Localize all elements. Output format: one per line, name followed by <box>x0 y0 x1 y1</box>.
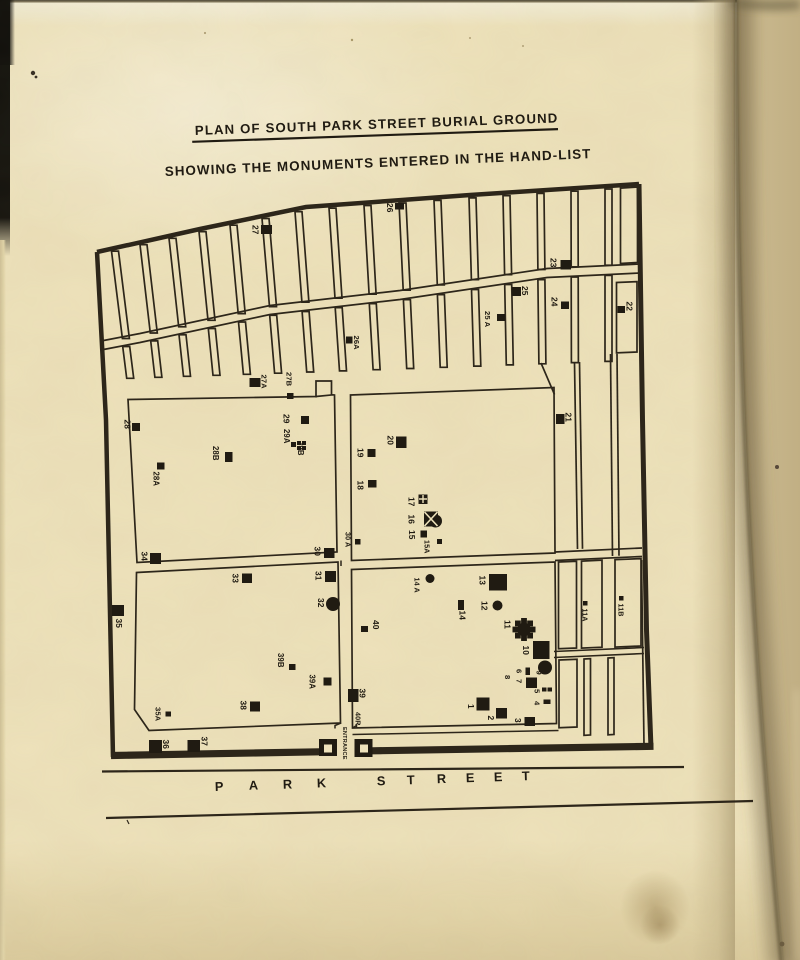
svg-text:24: 24 <box>550 297 560 307</box>
svg-text:39: 39 <box>358 689 368 699</box>
svg-text:27A: 27A <box>260 375 269 390</box>
svg-text:37: 37 <box>200 737 210 747</box>
svg-text:30 A: 30 A <box>344 532 353 547</box>
svg-text:35A: 35A <box>154 707 163 722</box>
svg-text:8: 8 <box>503 675 512 679</box>
svg-text:R: R <box>283 776 293 791</box>
svg-text:6: 6 <box>515 669 524 673</box>
svg-text:33: 33 <box>231 574 241 584</box>
svg-text:19: 19 <box>356 448 366 458</box>
svg-text:K: K <box>317 775 327 790</box>
svg-text:T: T <box>407 772 415 787</box>
svg-text:30: 30 <box>313 547 323 557</box>
svg-text:R: R <box>437 771 447 786</box>
svg-text:29B: 29B <box>296 441 305 456</box>
svg-text:29A: 29A <box>282 429 291 444</box>
svg-text:38: 38 <box>239 701 249 711</box>
svg-text:20: 20 <box>386 436 396 446</box>
svg-text:1: 1 <box>466 704 476 709</box>
svg-text:40R: 40R <box>354 712 363 726</box>
svg-text:14: 14 <box>458 611 468 621</box>
svg-text:39A: 39A <box>308 675 317 690</box>
svg-text:29: 29 <box>282 414 292 424</box>
svg-text:26A: 26A <box>352 336 361 351</box>
svg-text:T: T <box>522 768 530 783</box>
svg-text:14 A: 14 A <box>413 578 422 593</box>
svg-text:11B: 11B <box>617 604 626 617</box>
svg-text:32: 32 <box>316 598 326 608</box>
svg-text:16: 16 <box>407 515 417 525</box>
svg-text:S: S <box>377 773 386 788</box>
svg-text:7: 7 <box>515 679 524 683</box>
svg-text:11A: 11A <box>581 609 590 622</box>
svg-text:40: 40 <box>371 620 381 630</box>
svg-text:E: E <box>494 769 503 784</box>
svg-text:18: 18 <box>356 481 366 491</box>
svg-text:12: 12 <box>480 601 490 611</box>
svg-text:28A: 28A <box>152 472 161 487</box>
svg-text:31: 31 <box>314 571 324 581</box>
svg-text:34: 34 <box>140 552 150 562</box>
svg-text:3: 3 <box>513 718 523 723</box>
svg-text:21: 21 <box>564 413 574 423</box>
svg-text:10: 10 <box>521 646 531 656</box>
svg-text:11: 11 <box>503 620 513 629</box>
svg-text:4: 4 <box>533 701 542 706</box>
svg-text:ENTRANCE: ENTRANCE <box>341 727 347 760</box>
svg-text:15A: 15A <box>423 540 432 554</box>
svg-text:22: 22 <box>625 302 635 312</box>
svg-text:27: 27 <box>251 225 261 235</box>
svg-text:2: 2 <box>486 716 496 721</box>
svg-text:28: 28 <box>123 420 133 430</box>
svg-text:E: E <box>466 770 475 785</box>
svg-text:9: 9 <box>535 671 544 675</box>
svg-text:13: 13 <box>478 576 488 586</box>
svg-text:36: 36 <box>161 740 171 750</box>
svg-text:5: 5 <box>533 689 542 694</box>
svg-text:28B: 28B <box>211 446 220 461</box>
svg-text:P: P <box>215 779 224 794</box>
svg-text:25: 25 <box>520 286 530 296</box>
svg-text:17: 17 <box>407 497 417 507</box>
svg-text:A: A <box>249 777 259 792</box>
svg-text:26: 26 <box>385 203 395 213</box>
svg-text:27B: 27B <box>285 372 294 387</box>
svg-text:25 A: 25 A <box>483 311 492 328</box>
svg-text:39B: 39B <box>276 653 285 668</box>
svg-text:35: 35 <box>114 619 124 629</box>
svg-text:23: 23 <box>549 258 559 268</box>
svg-text:15: 15 <box>407 530 417 540</box>
